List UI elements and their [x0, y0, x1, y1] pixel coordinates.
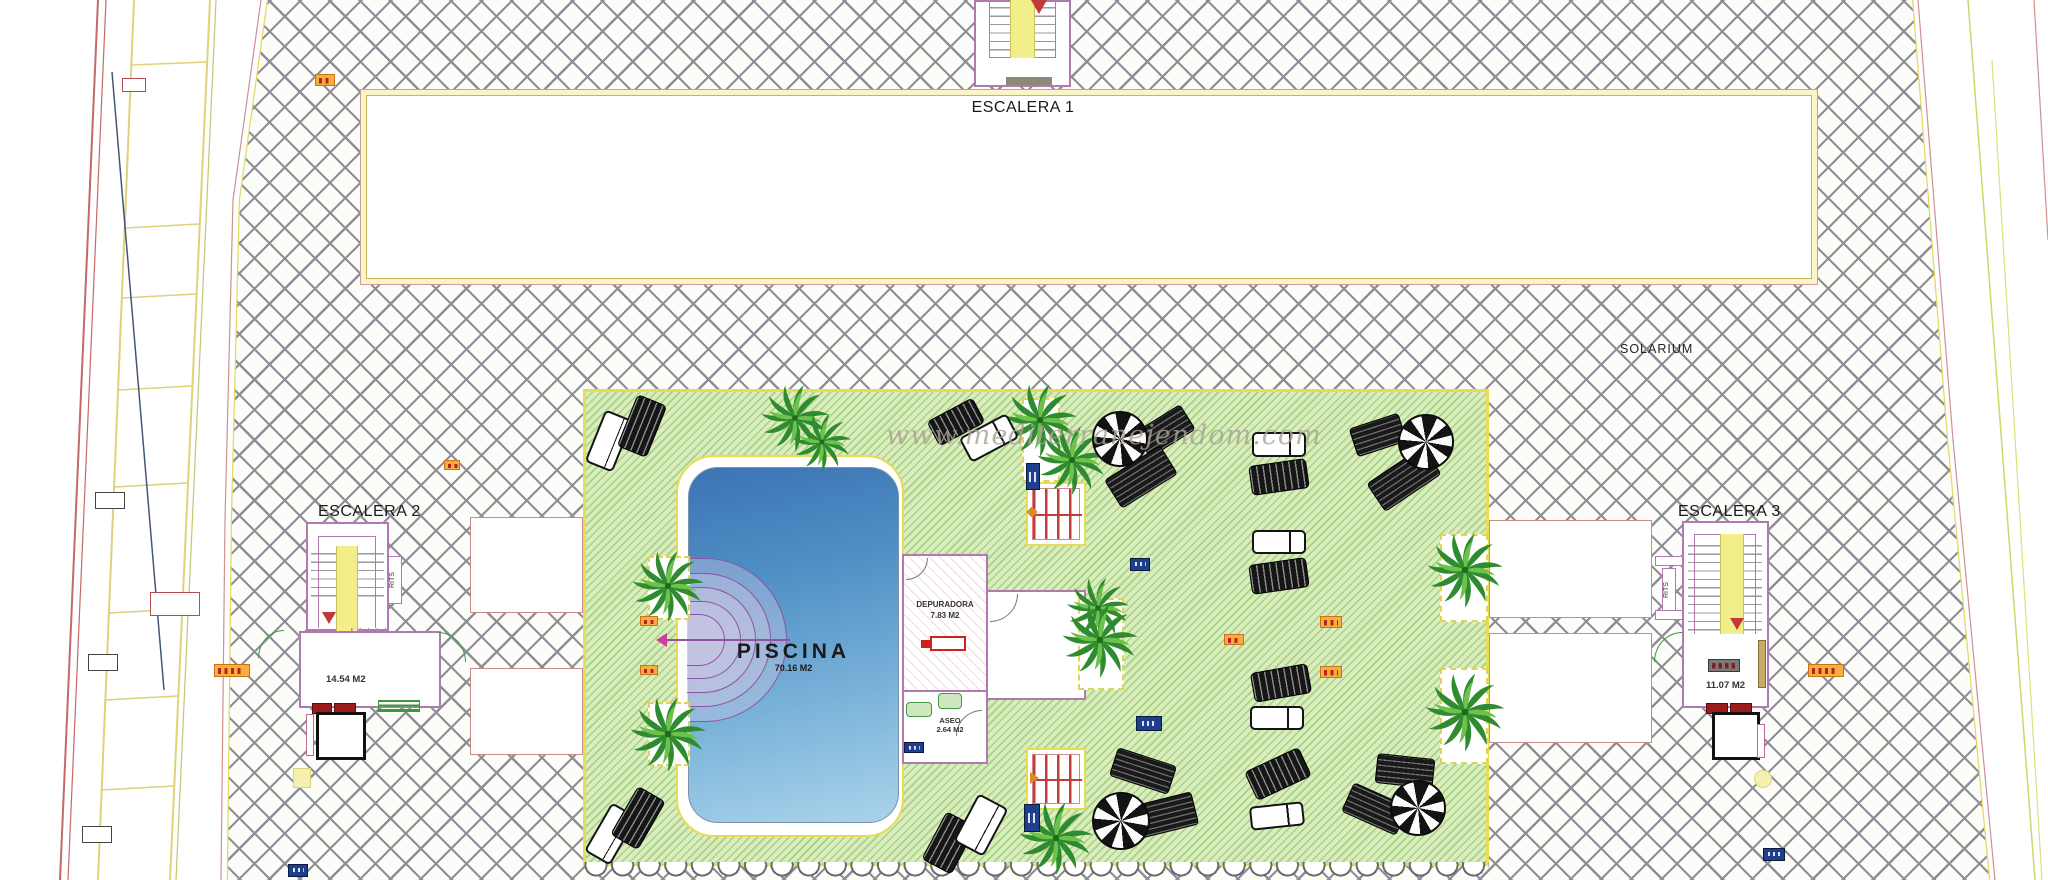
beach-parasol: [1390, 780, 1446, 836]
escalera2-area-label: 14.54 M2: [326, 674, 366, 685]
stair-direction-arrow: [1730, 618, 1744, 630]
palm-tree: [791, 411, 853, 473]
cad-marker-blue: [1024, 804, 1040, 832]
boundary-box: [150, 592, 200, 616]
service-pad: [293, 768, 311, 788]
rits-shaft-label: RITS: [1662, 568, 1676, 612]
aseo-label: ASEO: [920, 716, 980, 725]
pump-symbol-inlet: [921, 640, 931, 648]
sun-lounger: [1250, 706, 1304, 730]
solarium-label: SOLARIUM: [1620, 342, 1693, 356]
cad-marker-blue: [904, 742, 924, 753]
escalera1-label: ESCALERA 1: [958, 99, 1088, 117]
cad-marker-blue: [1026, 463, 1040, 490]
elevator-shaft: [1712, 712, 1760, 760]
building-interior: [366, 95, 1812, 279]
palm-tree: [628, 694, 708, 774]
wall-stub: [1655, 610, 1683, 620]
cad-marker-blue: [1130, 558, 1150, 571]
beach-parasol: [1092, 792, 1150, 850]
stair-direction-arrow: [322, 612, 336, 624]
sun-lounger: [1252, 530, 1306, 554]
cad-marker-orange: [1320, 616, 1342, 628]
wall-stub: [1655, 556, 1683, 566]
steps-arrow: [656, 633, 667, 647]
boundary-box: [122, 78, 146, 92]
cad-marker-orange: [1224, 634, 1244, 645]
building-block: [360, 89, 1818, 285]
cad-marker-orange: [640, 616, 658, 626]
escalera1-threshold: [1006, 77, 1052, 85]
escalera2-label: ESCALERA 2: [318, 503, 421, 521]
cad-marker-orange: [1808, 664, 1844, 677]
beach-parasol: [1398, 414, 1454, 470]
floor-plan: SOLARIUM ESCALERA 1 PISCINA 70.16 M2 DEP…: [0, 0, 2048, 880]
lift-door-strip: [1757, 724, 1765, 758]
palm-tree: [630, 548, 706, 624]
escalera2-lobby: [299, 631, 441, 708]
stair-direction-arrow: [1031, 0, 1047, 14]
depuradora-area-label: 7.83 M2: [906, 611, 984, 621]
pergola-arrow: [1030, 772, 1039, 784]
toilet-fixture: [938, 693, 962, 709]
cad-marker-blue: [288, 864, 308, 877]
cad-marker-orange: [640, 665, 658, 675]
pool-area-label: 70.16 M2: [688, 663, 899, 673]
escalera3-label: ESCALERA 3: [1678, 503, 1781, 521]
palm-tree: [1425, 530, 1505, 610]
sink-fixture: [906, 702, 932, 717]
rits-shaft-label: RITS: [388, 556, 402, 604]
escalera2-flight: [336, 546, 358, 631]
pergola-beam: [1030, 514, 1082, 516]
palm-tree: [1423, 670, 1507, 754]
boundary-box: [95, 492, 125, 509]
service-pad: [1754, 770, 1772, 788]
cad-marker-orange: [1320, 666, 1342, 678]
room-tag-badge: [1708, 659, 1740, 672]
side-room: [1489, 633, 1652, 743]
cad-marker-blue: [1136, 716, 1162, 731]
boundary-box: [88, 654, 118, 671]
bench-strip: [1758, 640, 1766, 688]
side-room: [470, 517, 583, 613]
palm-tree: [1060, 600, 1140, 680]
aseo-area-label: 2.64 M2: [920, 725, 980, 734]
lift-door-strip: [306, 714, 314, 756]
depuradora-label: DEPURADORA: [906, 600, 984, 610]
cad-marker-blue: [1763, 848, 1785, 861]
boundary-box: [82, 826, 112, 843]
side-room: [470, 668, 583, 755]
watermark: www.mediterranejendom.com: [886, 420, 1206, 451]
elevator-shaft: [316, 712, 366, 760]
cad-marker-orange: [444, 460, 460, 470]
cad-marker-orange: [214, 664, 250, 677]
pool-label: PISCINA: [688, 640, 899, 664]
side-room: [1489, 520, 1652, 618]
pump-symbol: [930, 636, 966, 651]
cad-marker-orange: [315, 74, 335, 86]
vent-grate: [378, 700, 420, 712]
escalera3-area-label: 11.07 M2: [1706, 680, 1745, 691]
